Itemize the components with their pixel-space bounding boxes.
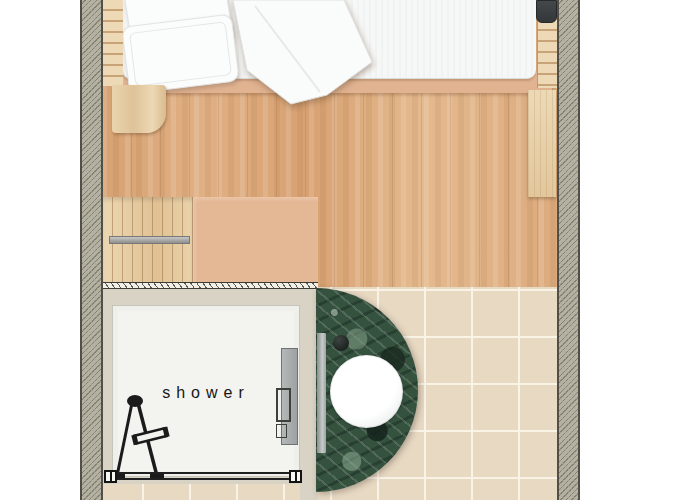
tile-below-screen [102,484,300,500]
wall-right [557,0,580,500]
wood-side-panel [528,90,556,197]
slatted-rail-right [537,20,557,88]
round-sink-basin [330,355,403,428]
dark-wall-unit [536,0,557,23]
partition-hatch-strip [102,282,318,289]
wall-left [80,0,103,500]
bedside-table [112,85,166,133]
glass-line [116,472,290,474]
faucet-dot [333,335,349,351]
shower-fixture-icon [108,392,170,480]
glass-bracket-right [289,470,302,483]
pillow-seam [129,21,232,86]
towel-bar [109,236,190,244]
door-hinge-detail-small [276,424,287,438]
pillow-front [121,13,239,94]
glass-bracket-left [104,470,117,483]
floor-plan: shower [0,0,700,500]
door-hinge-detail [276,388,291,422]
vanity-side-rail [317,333,326,453]
low-cabinet [193,197,318,287]
slatted-rail-left [102,0,123,86]
glass-line [116,478,290,480]
glass-screen [104,470,302,483]
